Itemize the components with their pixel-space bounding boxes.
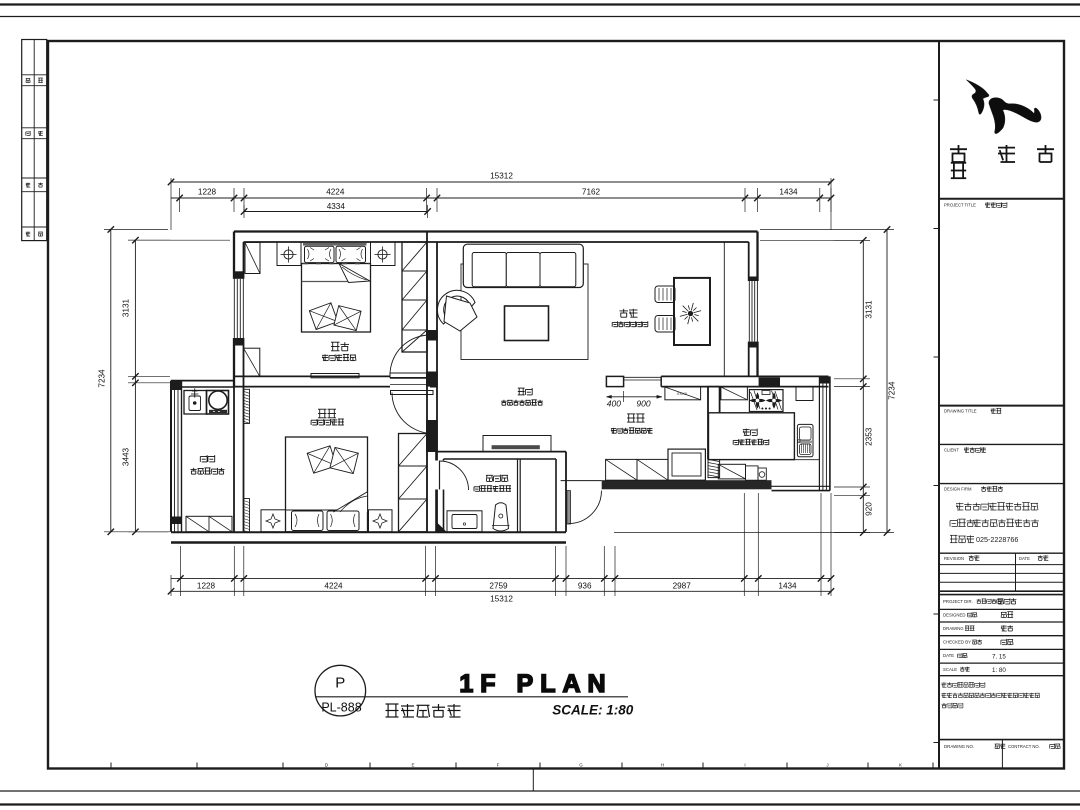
- svg-text:DRAWING: DRAWING: [943, 626, 964, 631]
- svg-text:2759: 2759: [489, 582, 508, 591]
- svg-text:900: 900: [636, 399, 650, 409]
- svg-text:H: H: [661, 763, 664, 768]
- svg-text:E: E: [411, 763, 414, 768]
- svg-text:4334: 4334: [327, 202, 346, 211]
- svg-text:1228: 1228: [197, 582, 216, 591]
- svg-text:7162: 7162: [582, 188, 601, 197]
- svg-text:1434: 1434: [779, 188, 798, 197]
- svg-text:P: P: [335, 675, 345, 692]
- svg-text:CHECKED BY: CHECKED BY: [943, 640, 971, 645]
- svg-text:DESIGNED: DESIGNED: [943, 612, 965, 617]
- svg-text:CONTRACT NO.: CONTRACT NO.: [1008, 744, 1040, 749]
- svg-text:J: J: [826, 763, 828, 768]
- svg-text:1: 80: 1: 80: [992, 667, 1006, 674]
- svg-text:XXXX: XXXX: [677, 391, 688, 396]
- svg-text:1434: 1434: [778, 582, 797, 591]
- svg-text:3131: 3131: [865, 300, 874, 319]
- svg-text:F: F: [497, 763, 500, 768]
- svg-text:4224: 4224: [324, 582, 343, 591]
- svg-text:DRAWING TITLE: DRAWING TITLE: [944, 409, 977, 414]
- svg-text:920: 920: [865, 502, 874, 516]
- svg-text:G: G: [579, 763, 583, 768]
- svg-text:4224: 4224: [326, 188, 345, 197]
- svg-text:PROJECT TITLE: PROJECT TITLE: [944, 203, 976, 208]
- svg-text:7. 15: 7. 15: [992, 654, 1006, 661]
- svg-text:DRAWING NO.: DRAWING NO.: [944, 744, 974, 749]
- svg-text:936: 936: [578, 582, 592, 591]
- svg-text:1F PLAN: 1F PLAN: [459, 670, 612, 698]
- svg-text:PROJECT DIR.: PROJECT DIR.: [943, 599, 973, 604]
- svg-text:DATE: DATE: [943, 653, 954, 658]
- svg-text:2353: 2353: [865, 427, 874, 446]
- svg-text:15312: 15312: [490, 172, 513, 181]
- svg-text:15312: 15312: [490, 595, 513, 604]
- svg-text:REVISION: REVISION: [944, 556, 964, 561]
- svg-text:CLIENT: CLIENT: [944, 448, 959, 453]
- svg-text:7234: 7234: [888, 381, 897, 400]
- svg-text:025-2228766: 025-2228766: [976, 535, 1018, 544]
- svg-text:3443: 3443: [122, 447, 131, 466]
- svg-text:SCALE: 1:80: SCALE: 1:80: [552, 703, 634, 718]
- svg-text:DATE: DATE: [1019, 556, 1030, 561]
- svg-text:PL-888: PL-888: [321, 701, 361, 715]
- svg-text:I: I: [744, 763, 745, 768]
- svg-text:SCALE: SCALE: [943, 667, 957, 672]
- svg-text:1228: 1228: [198, 188, 217, 197]
- svg-text:400: 400: [607, 399, 621, 409]
- svg-text:7234: 7234: [98, 369, 107, 388]
- svg-text:3131: 3131: [122, 298, 131, 317]
- svg-text:DESIGN FIRM: DESIGN FIRM: [944, 487, 972, 492]
- svg-text:K: K: [899, 763, 902, 768]
- svg-text:2987: 2987: [673, 582, 692, 591]
